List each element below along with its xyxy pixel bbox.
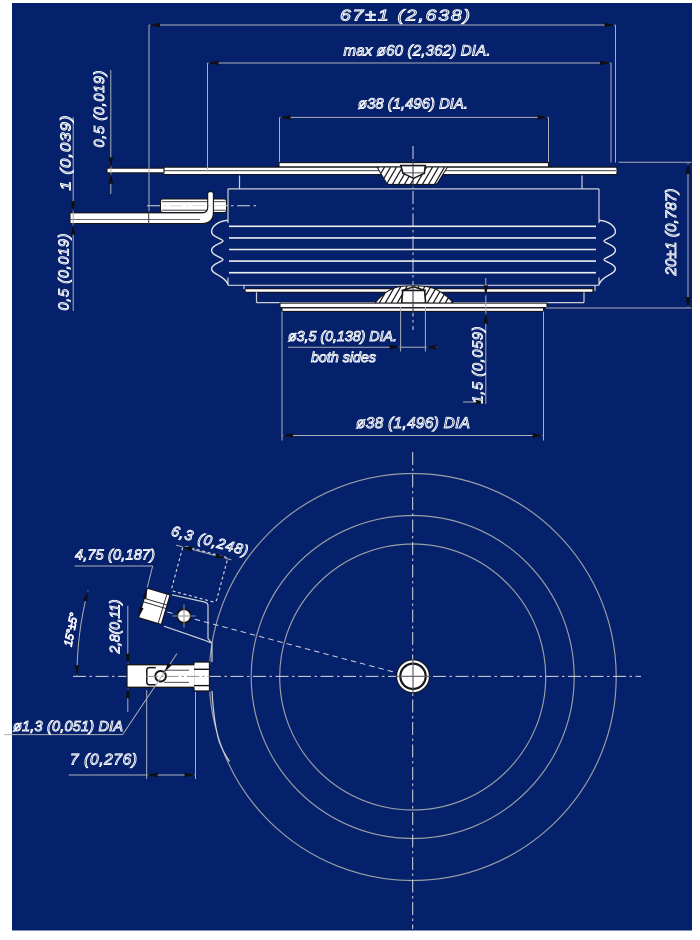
svg-text:67±1 (2,638): 67±1 (2,638) [340, 8, 470, 25]
svg-text:1,5 (0,059): 1,5 (0,059) [471, 327, 487, 404]
svg-text:max ø60 (2,362) DIA.: max ø60 (2,362) DIA. [344, 43, 491, 60]
svg-text:1 (0,039): 1 (0,039) [59, 116, 75, 191]
svg-text:4,75 (0,187): 4,75 (0,187) [75, 548, 155, 564]
svg-text:ø38 (1,496) DIA.: ø38 (1,496) DIA. [358, 97, 468, 113]
svg-text:0,5 (0,019): 0,5 (0,019) [92, 71, 108, 148]
svg-text:ø38 (1,496) DIA: ø38 (1,496) DIA [356, 415, 470, 432]
svg-text:ø3,5 (0,138) DIA.: ø3,5 (0,138) DIA. [288, 329, 397, 345]
svg-text:20±1 (0,787): 20±1 (0,787) [663, 189, 680, 277]
svg-text:both sides: both sides [311, 350, 376, 366]
svg-text:ø1,3 (0,051) DIA: ø1,3 (0,051) DIA [13, 719, 123, 735]
svg-text:0,5 (0,019): 0,5 (0,019) [57, 234, 73, 311]
svg-text:2,8(0,11): 2,8(0,11) [107, 600, 123, 655]
svg-text:7 (0,276): 7 (0,276) [70, 752, 137, 769]
